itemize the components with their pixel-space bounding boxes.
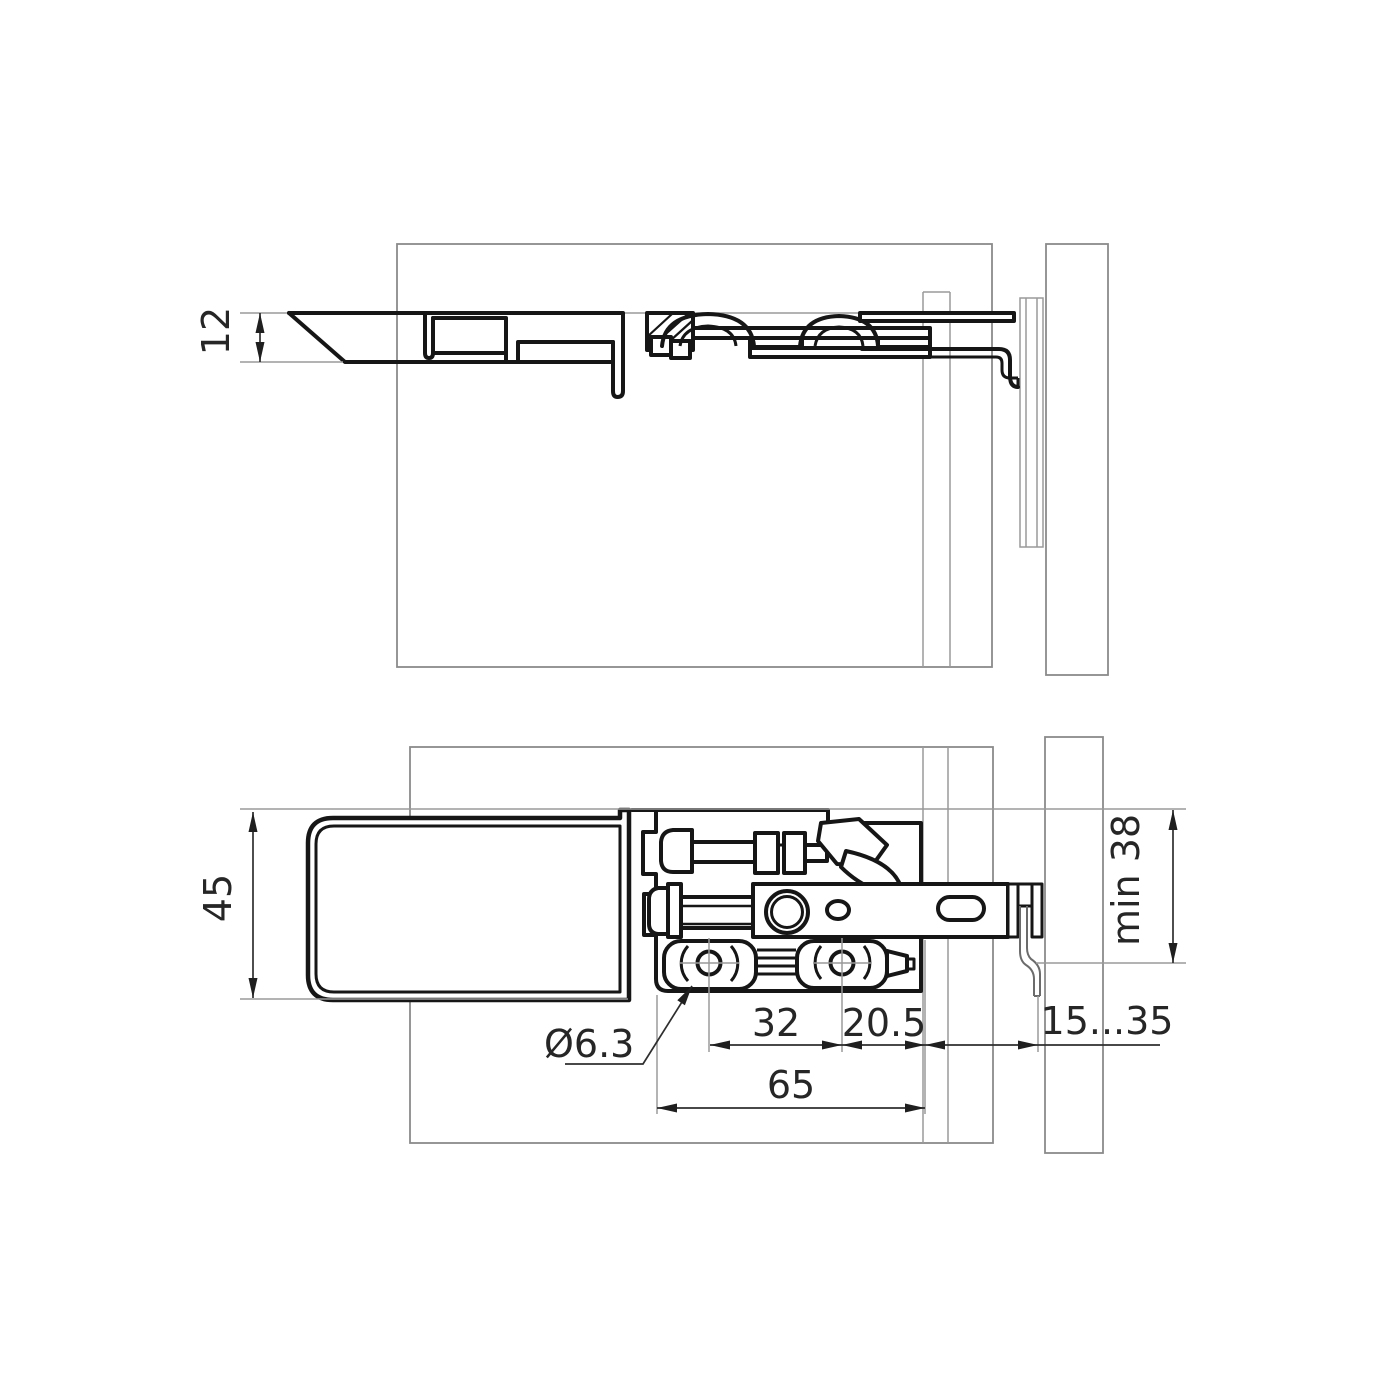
arrow-32-left: [710, 1041, 730, 1050]
bottom-back-strip: [923, 747, 948, 1143]
lower-bolt-head: [649, 888, 668, 934]
dim-label-diameter: Ø6.3: [544, 1022, 634, 1066]
dim-label-12: 12: [194, 307, 238, 355]
dim-label-32: 32: [752, 1001, 800, 1045]
wall-bracket-inner: [862, 357, 1018, 387]
dim-label-45: 45: [196, 874, 240, 922]
arrow-min38-down: [1169, 943, 1178, 963]
arrow-12-down: [256, 342, 265, 362]
profile-pocket: [433, 318, 506, 353]
dim-label-65: 65: [767, 1063, 815, 1107]
arrow-min38-up: [1169, 810, 1178, 830]
top-wall-panel: [1046, 244, 1108, 675]
bottom-cover-cap: [308, 810, 629, 1000]
bottom-wall-panel: [1045, 737, 1103, 1153]
top-section-view: [289, 244, 1108, 675]
cover-outer: [308, 810, 629, 1000]
dim-label-1535: 15...35: [1041, 999, 1174, 1043]
upper-bolt-block-2: [784, 833, 805, 873]
hook-bracket-crossbar: [1018, 884, 1032, 906]
top-shelf-profile: [289, 313, 623, 397]
bottom-section-view: [308, 737, 1103, 1153]
profile-step: [506, 342, 613, 362]
top-wall-rail: [1020, 298, 1043, 547]
drive-tip: [887, 951, 907, 976]
dim-label-min38: min 38: [1104, 814, 1148, 946]
arrow-32-right: [822, 1041, 842, 1050]
arrow-1535-left: [925, 1041, 945, 1050]
mech-slab-right: [878, 338, 930, 347]
technical-drawing-page: 12 45 min 38 32 20.5 15...35 65 Ø6.3: [0, 0, 1400, 1400]
arrow-45-down: [249, 978, 258, 998]
upper-bolt-head: [661, 830, 692, 872]
arrow-12-up: [256, 313, 265, 333]
bottom-fixture-housing: [632, 810, 1042, 996]
mech-slab-left: [750, 338, 802, 347]
arm-small-hole: [827, 901, 849, 919]
arrow-1535-right: [1018, 1041, 1038, 1050]
top-hanger-mechanism: [647, 313, 1018, 387]
technical-drawing-canvas: 12 45 min 38 32 20.5 15...35 65 Ø6.3: [0, 0, 1400, 1400]
top-wall-rail-inner-lines: [1026, 298, 1037, 547]
upper-bolt-shaft: [692, 842, 755, 862]
arm-slot-hole: [938, 897, 984, 920]
dim-label-205: 20.5: [842, 1001, 927, 1045]
upper-bolt-block-1: [755, 833, 778, 873]
arrow-45-up: [249, 812, 258, 832]
mech-top-plate: [860, 313, 1014, 321]
top-cabinet-panel: [397, 244, 992, 667]
arrow-65-right: [905, 1104, 925, 1113]
arrow-65-left: [657, 1104, 677, 1113]
